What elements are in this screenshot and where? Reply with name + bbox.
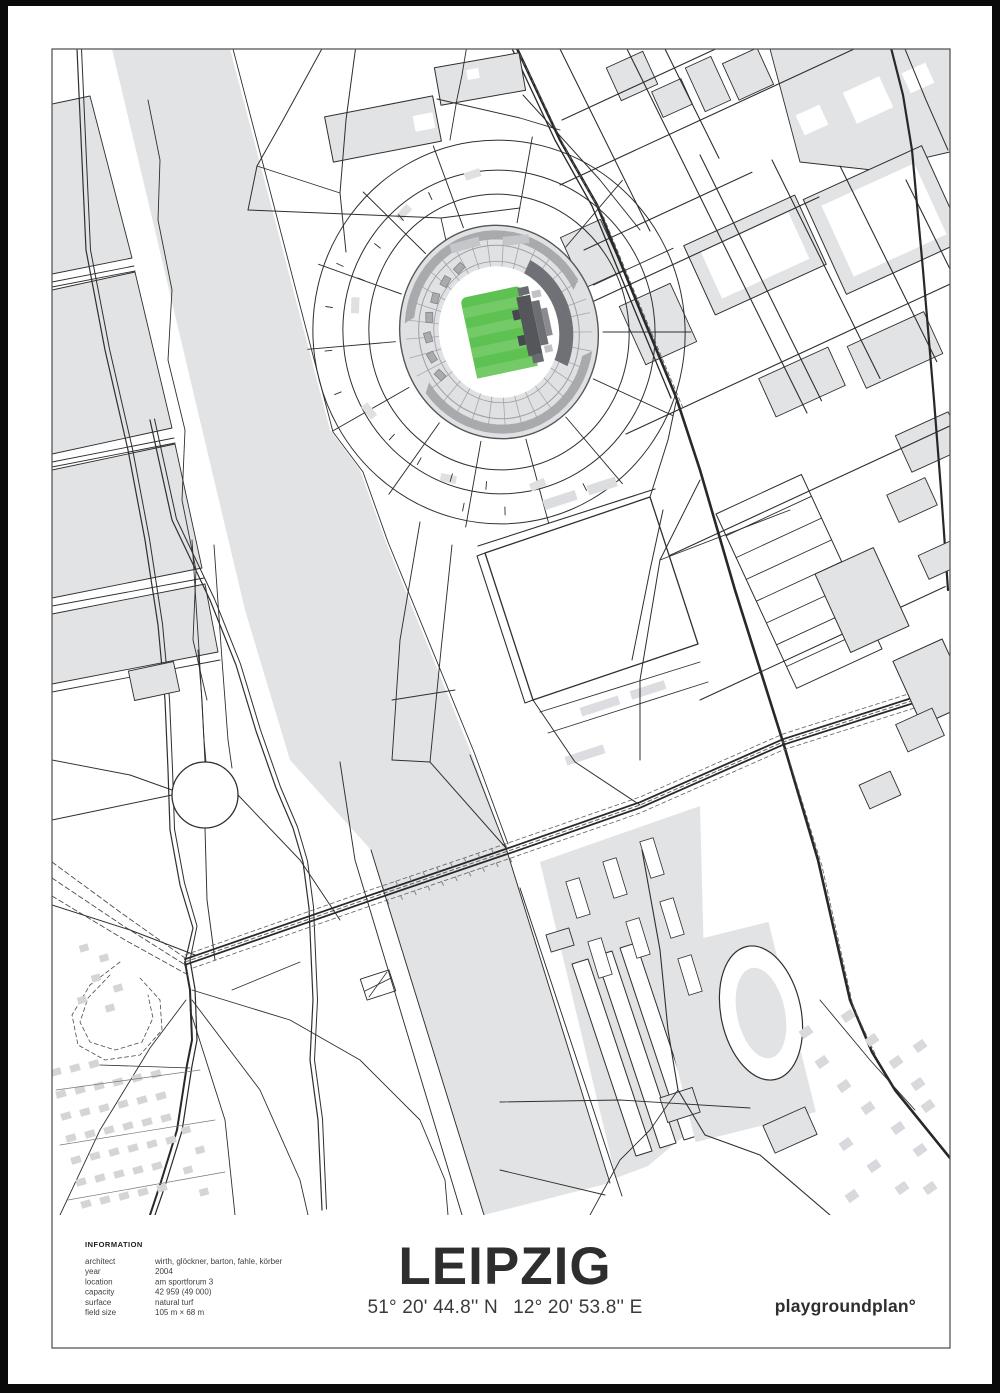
svg-text:surface: surface <box>85 1298 112 1307</box>
svg-text:wirth, glöckner, barton, fahle: wirth, glöckner, barton, fahle, körber <box>154 1257 283 1266</box>
svg-text:architect: architect <box>85 1257 116 1266</box>
svg-text:playgroundplan°: playgroundplan° <box>775 1296 916 1316</box>
svg-text:105 m × 68 m: 105 m × 68 m <box>155 1308 204 1317</box>
svg-text:INFORMATION: INFORMATION <box>85 1240 143 1249</box>
svg-text:natural turf: natural turf <box>155 1298 194 1307</box>
svg-text:51° 20' 44.8'' N 12° 20' 53.8: 51° 20' 44.8'' N 12° 20' 53.8'' E <box>367 1297 642 1318</box>
svg-text:capacity: capacity <box>85 1288 114 1297</box>
svg-text:location: location <box>85 1277 113 1286</box>
svg-text:year: year <box>85 1267 101 1276</box>
svg-text:2004: 2004 <box>155 1267 173 1276</box>
svg-text:LEIPZIG: LEIPZIG <box>398 1237 611 1296</box>
svg-text:field size: field size <box>85 1308 117 1317</box>
svg-text:am sportforum 3: am sportforum 3 <box>155 1277 214 1286</box>
svg-text:42 959 (49 000): 42 959 (49 000) <box>155 1288 212 1297</box>
